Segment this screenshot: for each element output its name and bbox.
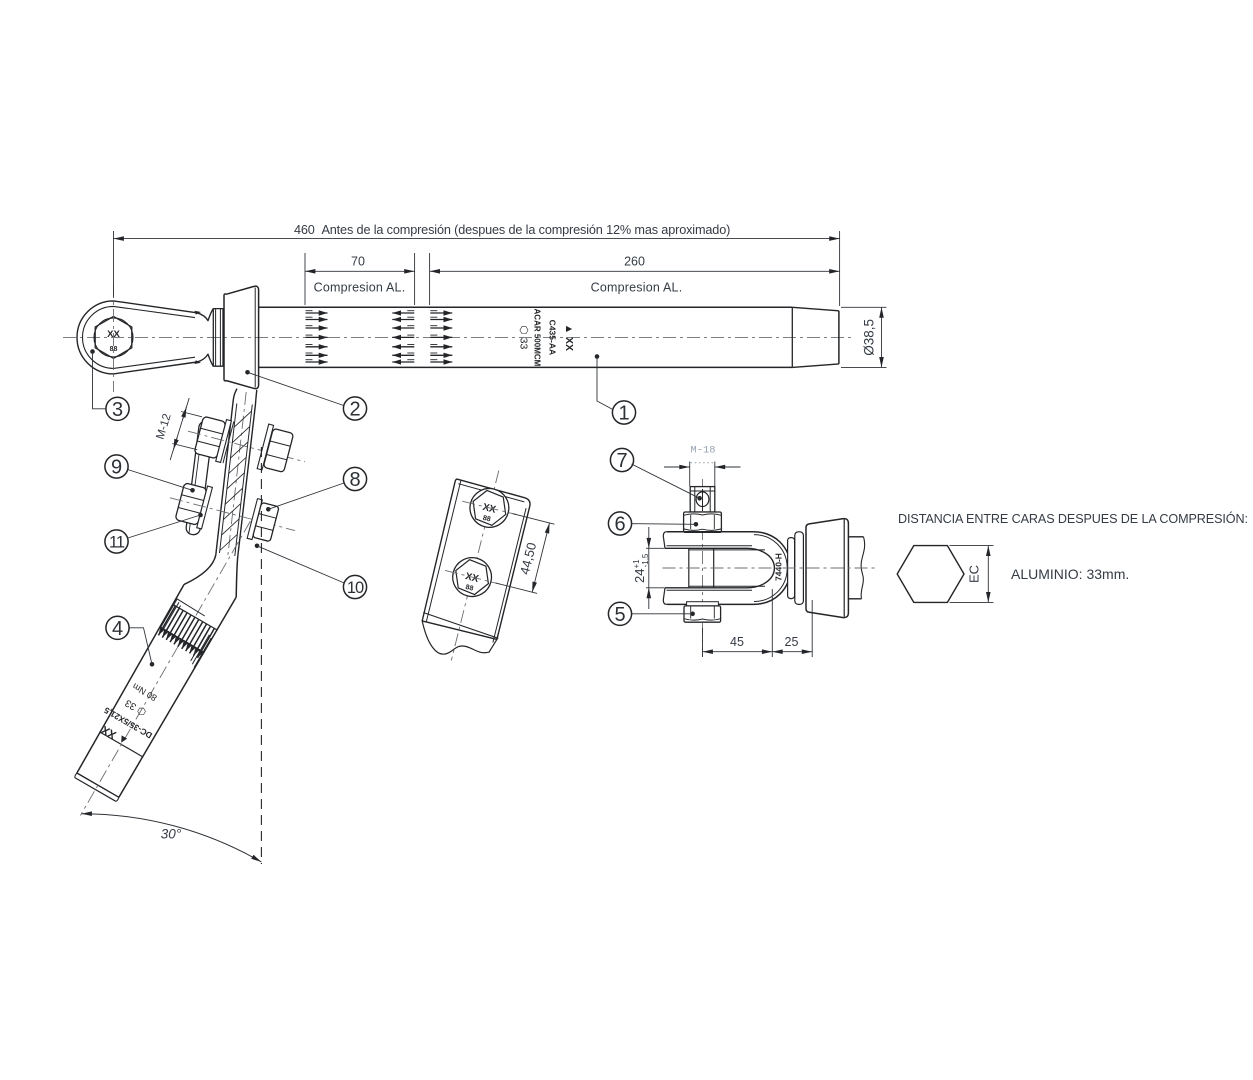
svg-text:2: 2 <box>349 399 360 421</box>
svg-text:DISTANCIA ENTRE CARAS DESPUES: DISTANCIA ENTRE CARAS DESPUES DE LA COMP… <box>898 511 1248 526</box>
svg-text:45: 45 <box>730 635 744 649</box>
svg-text:260: 260 <box>624 255 645 269</box>
svg-text:460 Antes de la compresión (d: 460 Antes de la compresión (despues de l… <box>294 223 730 237</box>
svg-text:▲ XX: ▲ XX <box>563 324 575 351</box>
svg-text:⬡ 33: ⬡ 33 <box>518 326 530 350</box>
svg-text:Compresion AL.: Compresion AL. <box>591 281 683 295</box>
svg-text:6: 6 <box>614 514 625 536</box>
svg-text:70: 70 <box>351 255 365 269</box>
svg-text:7: 7 <box>616 450 627 472</box>
svg-text:5: 5 <box>614 604 625 626</box>
svg-text:3: 3 <box>112 399 123 421</box>
svg-text:ACAR 500MCM: ACAR 500MCM <box>533 309 542 367</box>
svg-text:10: 10 <box>347 579 364 597</box>
svg-text:M-18: M-18 <box>690 445 715 457</box>
svg-text:8: 8 <box>349 469 360 491</box>
svg-text:30°: 30° <box>161 827 182 842</box>
svg-text:EC: EC <box>967 565 982 583</box>
svg-text:1: 1 <box>618 403 629 425</box>
svg-text:7440-H: 7440-H <box>774 553 784 581</box>
svg-text:9: 9 <box>111 457 122 479</box>
svg-text:ALUMINIO: 33mm.: ALUMINIO: 33mm. <box>1011 566 1129 582</box>
svg-text:11: 11 <box>109 534 125 552</box>
svg-text:Compresion AL.: Compresion AL. <box>314 281 406 295</box>
svg-text:4: 4 <box>112 618 123 640</box>
svg-text:C435-AA: C435-AA <box>548 320 558 355</box>
svg-text:Ø38,5: Ø38,5 <box>862 319 877 356</box>
svg-text:25: 25 <box>785 635 799 649</box>
